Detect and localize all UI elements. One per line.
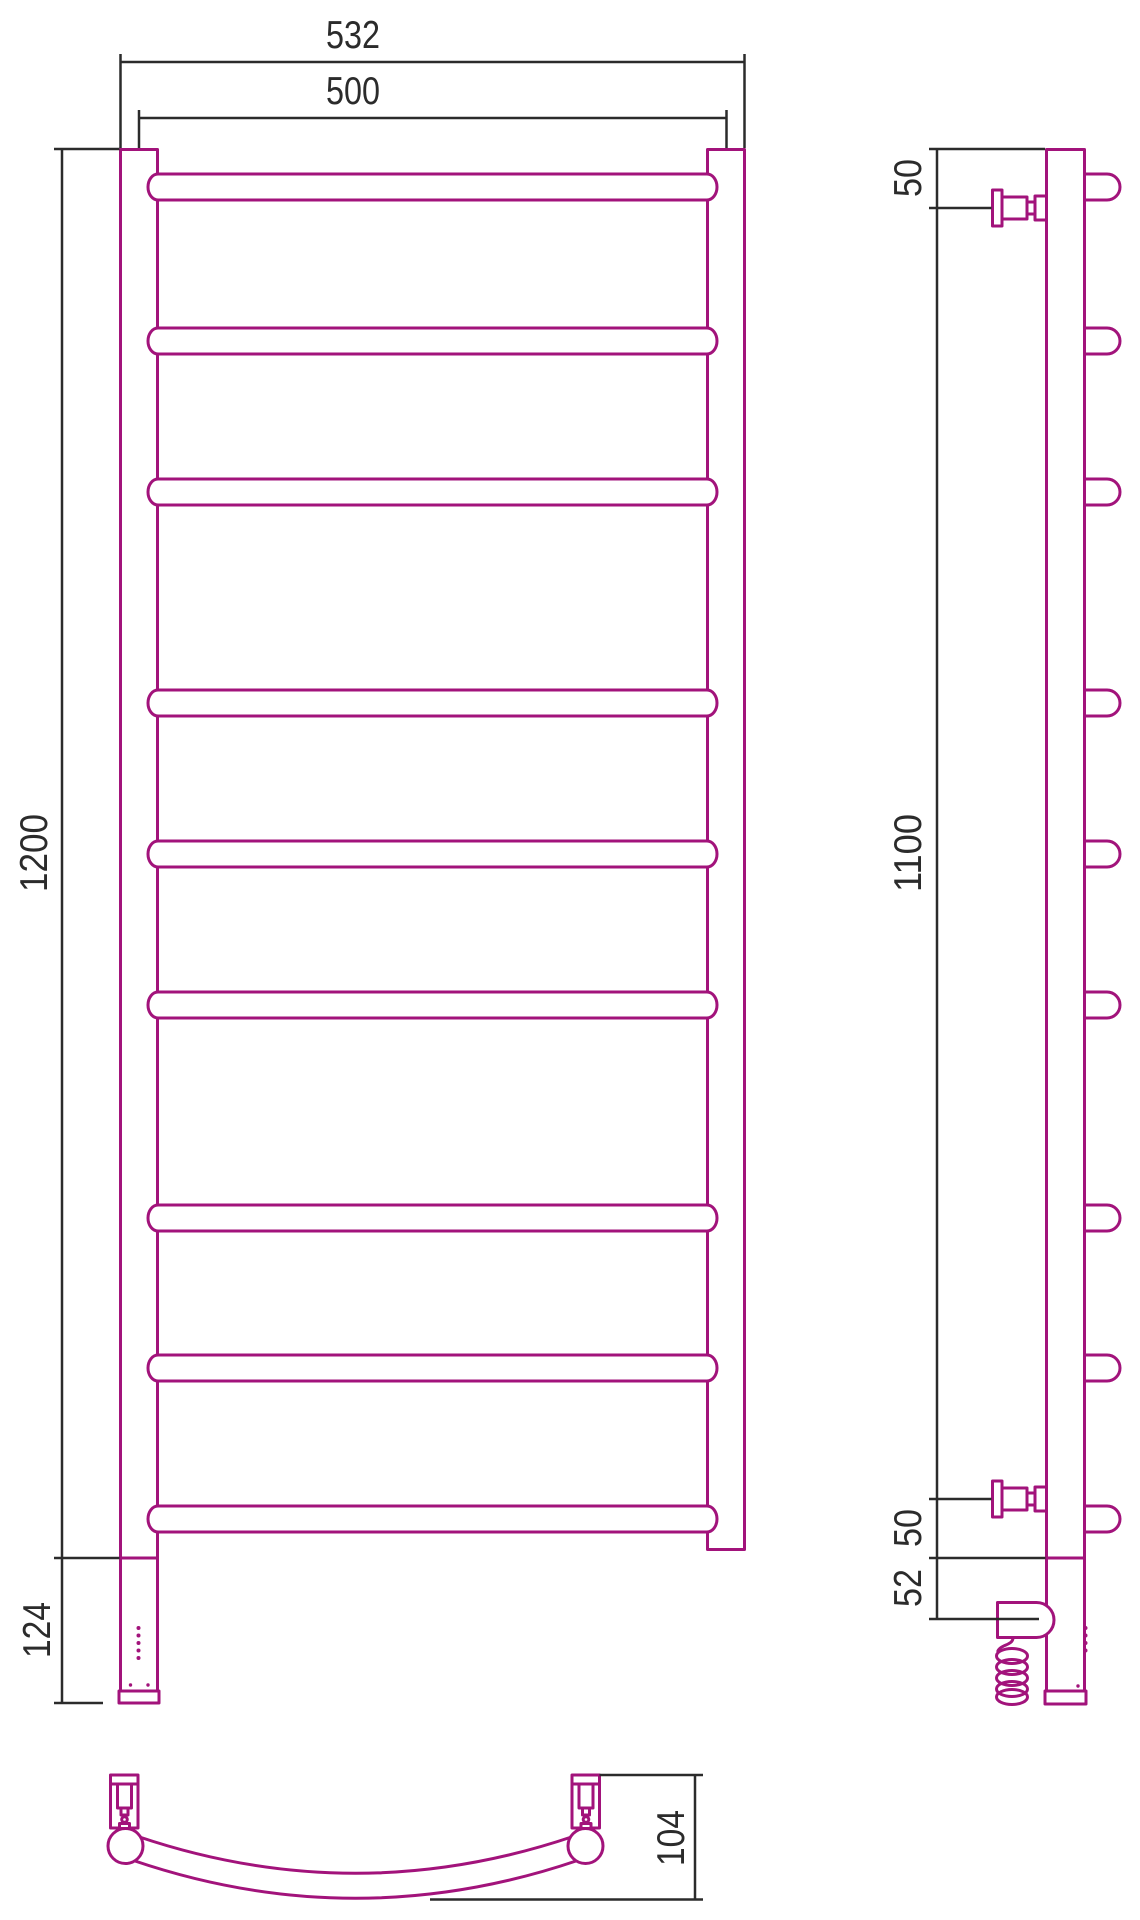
bottom-left-wall-bracket (111, 1775, 139, 1829)
side-collector (1047, 150, 1085, 1559)
dim-base-height: 124 (16, 1602, 59, 1658)
towel-rail-drawing: 532 500 1200 124 (0, 0, 1140, 1920)
rung (148, 174, 717, 200)
dim-side-top-offset: 50 (887, 159, 930, 197)
right-collector-section (568, 1829, 603, 1864)
dim-side-bottom-offset: 50 (887, 1509, 930, 1547)
dim-side-mount-height: 1100 (887, 814, 930, 892)
rung (148, 479, 717, 505)
dim-lines-base-height (54, 1558, 103, 1703)
front-view (119, 150, 745, 1704)
side-bottom-wall-bracket (993, 1481, 1047, 1517)
dim-outer-width: 532 (326, 14, 380, 57)
rung-end (1085, 328, 1121, 354)
bottom-right-wall-bracket (572, 1775, 600, 1829)
rung-end (1085, 841, 1121, 867)
dim-side-base-offset: 52 (887, 1569, 930, 1607)
dim-total-height: 1200 (13, 814, 56, 892)
rung (148, 328, 717, 354)
side-foot-plate (1045, 1691, 1086, 1704)
front-foot-plate (119, 1691, 159, 1703)
side-rung-ends (1085, 174, 1121, 1532)
rung-end (1085, 174, 1121, 200)
dim-lines-outer-width (121, 54, 745, 148)
rung (148, 690, 717, 716)
coiled-cord (997, 1649, 1028, 1705)
rung-end (1085, 1355, 1121, 1381)
rung-end (1085, 479, 1121, 505)
rung (148, 1355, 717, 1381)
side-view (993, 150, 1121, 1705)
technical-drawing-page: 532 500 1200 124 (0, 0, 1140, 1920)
bottom-view (108, 1775, 603, 1898)
dim-inner-width: 500 (326, 70, 380, 113)
rung-end (1085, 992, 1121, 1018)
front-heater-stand (121, 1558, 158, 1691)
rung (148, 841, 717, 867)
dim-depth: 104 (650, 1810, 693, 1866)
dim-lines-side (929, 149, 1046, 1619)
rung-end (1085, 1205, 1121, 1231)
rung (148, 1205, 717, 1231)
rung (148, 992, 717, 1018)
dim-lines-total-height (54, 149, 120, 1558)
curved-rung (134, 1837, 578, 1899)
rung-end (1085, 690, 1121, 716)
front-rungs (148, 174, 717, 1532)
rung (148, 1506, 717, 1532)
dim-lines-inner-width (139, 110, 727, 148)
rung-end (1085, 1506, 1121, 1532)
left-collector-section (108, 1829, 143, 1864)
side-dimensions: 50 1100 50 52 (887, 149, 1046, 1619)
side-top-wall-bracket (993, 190, 1047, 226)
